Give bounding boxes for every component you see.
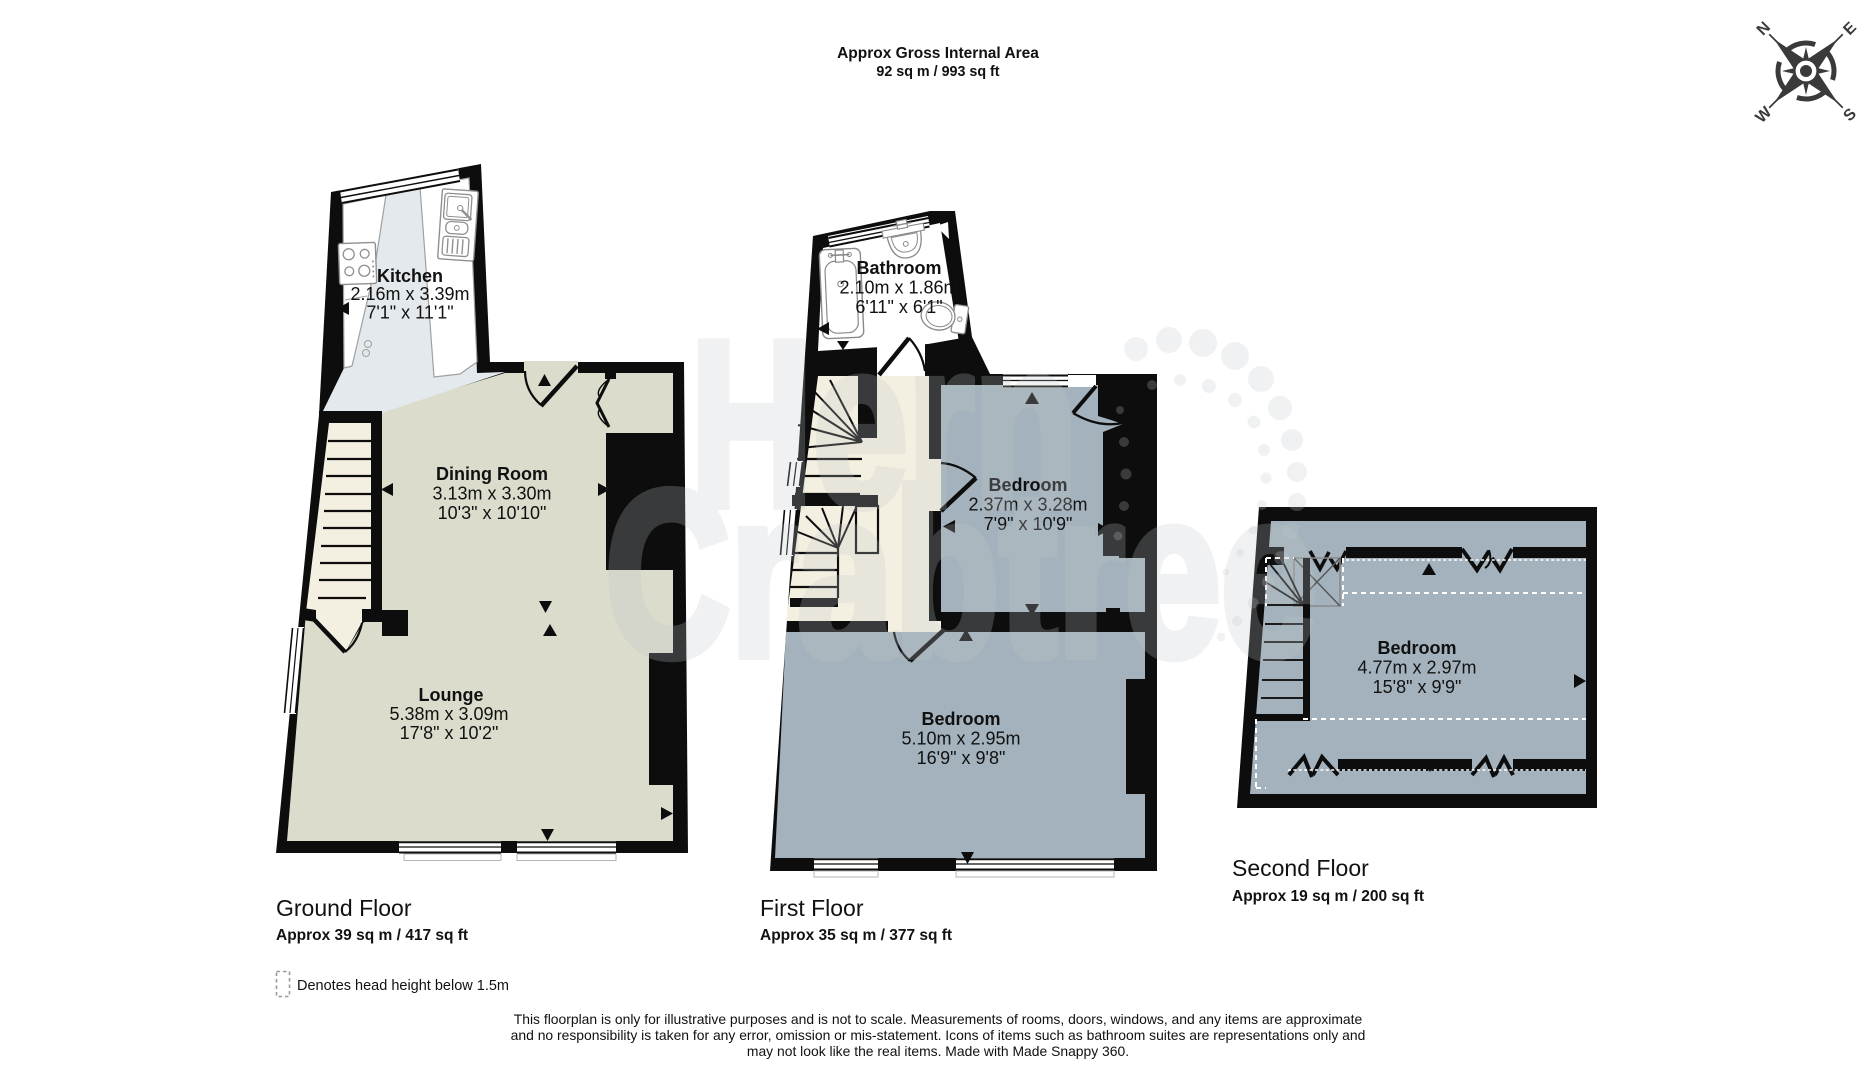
svg-text:Crabtree: Crabtree [605, 442, 1317, 705]
